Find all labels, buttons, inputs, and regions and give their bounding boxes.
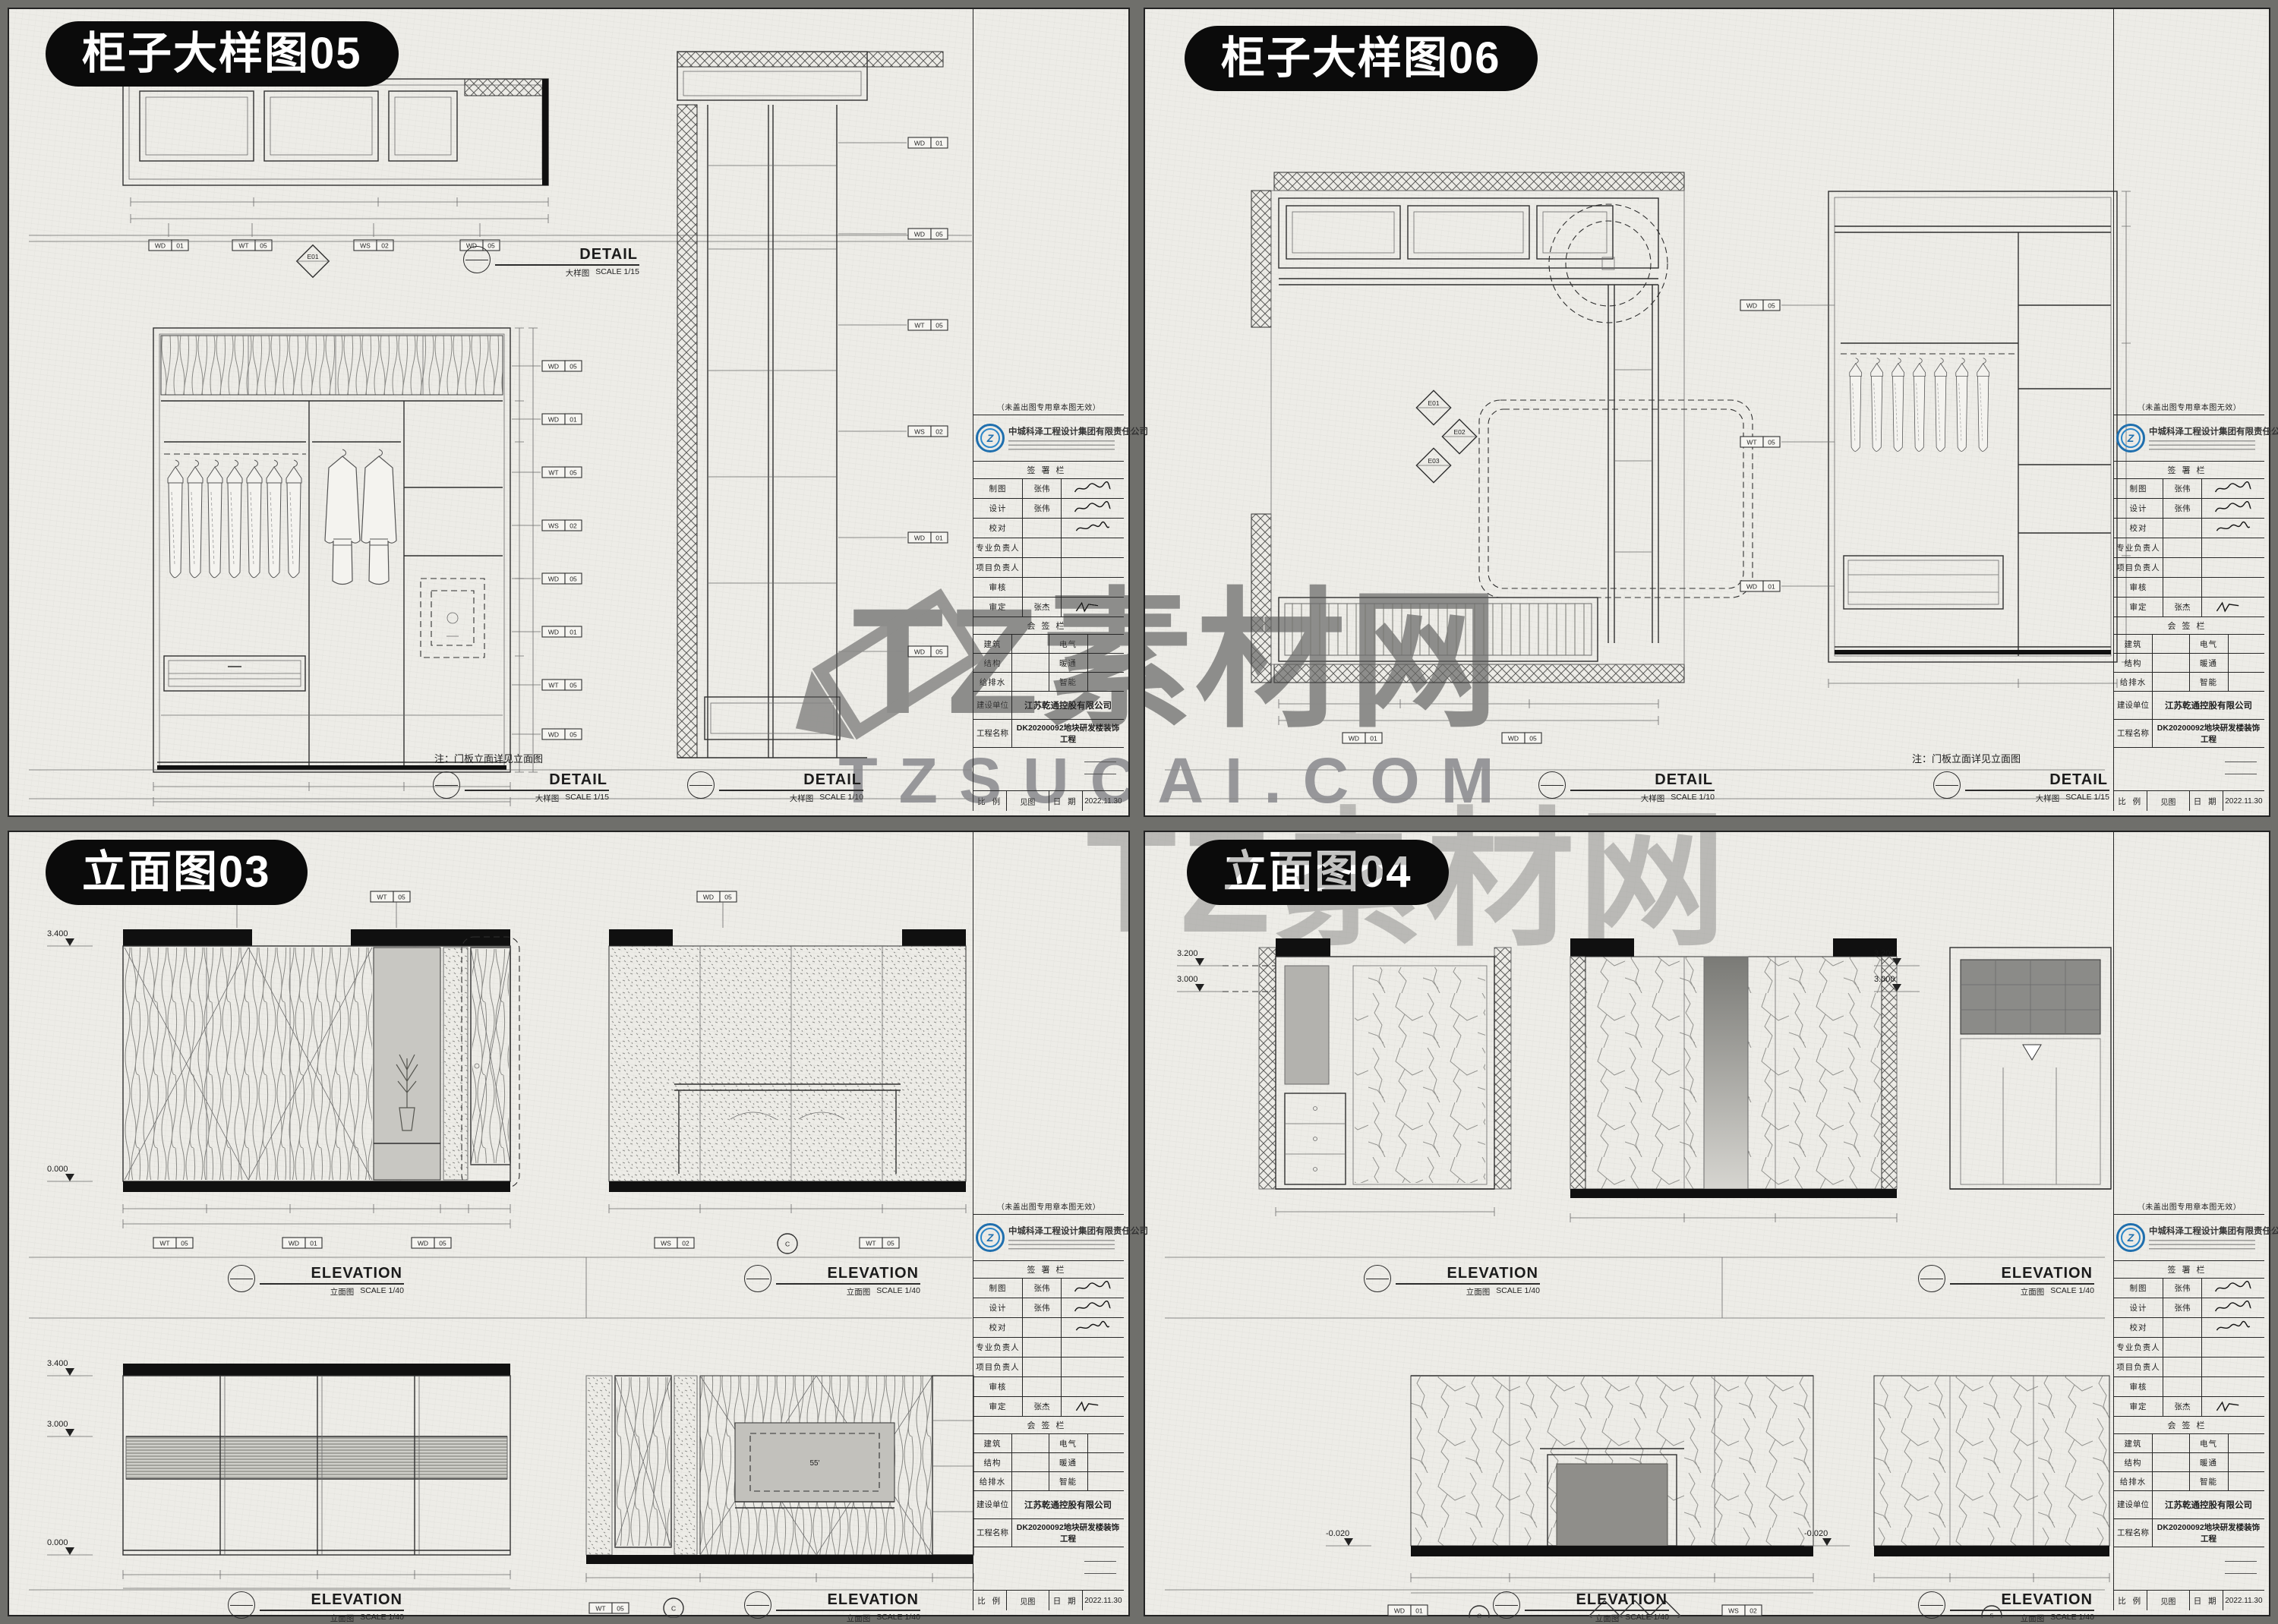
sheet-title-pill: 柜子大样图05 — [46, 21, 399, 87]
svg-text:3.400: 3.400 — [47, 929, 68, 938]
svg-text:WD: WD — [1349, 735, 1359, 743]
titleblock-row: 制图张伟 — [2114, 1279, 2264, 1298]
company-cert-microtext — [2149, 440, 2255, 453]
svg-text:05: 05 — [487, 242, 495, 250]
countersign-row: 结构暖通 — [2114, 1453, 2264, 1472]
cabinet-detail-06-drawing: E01 E02 E03 WD01 WD05 WD05 WT05 WD01 — [1145, 9, 2272, 818]
scale-date-row: 比 例见图 日 期2022.11.30 — [2114, 791, 2264, 811]
countersign-header: 会签栏 — [2114, 617, 2264, 635]
svg-text:WD: WD — [548, 575, 559, 583]
svg-text:01: 01 — [1415, 1607, 1423, 1615]
svg-text:WT: WT — [238, 242, 248, 250]
sheet-number-area — [973, 1547, 1124, 1591]
svg-text:E03: E03 — [1428, 457, 1439, 465]
level-mark: 3.400 — [47, 929, 93, 946]
title-block: （未盖出图专用章本图无效） Z 中城科泽工程设计集团有限责任公司 签署栏 制图张… — [973, 832, 1124, 1610]
titleblock-row: 审定张杰 — [973, 1397, 1124, 1417]
signature-scribble — [2213, 1281, 2254, 1295]
client-row: 建设单位江苏乾通控股有限公司 — [973, 1491, 1124, 1519]
svg-text:05: 05 — [569, 731, 577, 739]
sheet-elevation-03: 立面图03 WT05 WD01 WD05 — [8, 831, 1130, 1616]
cabinet-plan-detail: WD01 WT05 WS02 WD05 E01 — [123, 79, 548, 277]
signature-scribble — [1072, 1399, 1113, 1414]
tv-size-label: 55' — [809, 1459, 819, 1468]
elevation-label: ELEVATION 立面图SCALE 1/40 — [260, 1591, 404, 1624]
detail-label: DETAIL 大样图SCALE 1/10 — [1570, 771, 1715, 804]
svg-text:05: 05 — [1529, 735, 1537, 743]
scale-date-row: 比 例见图 日 期2022.11.30 — [2114, 1591, 2264, 1610]
svg-text:05: 05 — [181, 1240, 188, 1247]
company-row: Z 中城科泽工程设计集团有限责任公司 — [973, 1214, 1124, 1261]
countersign-row: 给排水智能 — [2114, 1472, 2264, 1491]
svg-text:05: 05 — [569, 363, 577, 371]
elevation-wood-wall-plant: WT05 WD01 WD05 3.400 0.000 WD01 WT05 — [47, 891, 519, 1248]
project-row: 工程名称DK20200092地块研发楼装饰工程 — [973, 720, 1124, 748]
elevation-marble-wall-wide — [1570, 938, 1897, 1222]
svg-text:3.200: 3.200 — [1177, 949, 1198, 958]
svg-text:05: 05 — [1768, 439, 1775, 446]
titleblock-row: 审核 — [973, 1377, 1124, 1397]
titleblock-row: 设计张伟 — [973, 499, 1124, 519]
company-logo-icon: Z — [2116, 1223, 2145, 1252]
svg-text:C: C — [785, 1241, 790, 1248]
svg-text:WS: WS — [548, 522, 559, 530]
level-mark: 3.000 — [47, 1420, 93, 1436]
level-mark: 0.000 — [47, 1165, 93, 1181]
svg-text:3.000: 3.000 — [1874, 975, 1895, 984]
sign-section-header: 签署栏 — [973, 462, 1124, 479]
ref-bubble — [433, 771, 460, 799]
svg-text:WT: WT — [548, 469, 558, 477]
grid-bubble: C — [1469, 1606, 1489, 1618]
titleblock-row: 审核 — [973, 578, 1124, 598]
svg-text:C: C — [671, 1605, 676, 1613]
company-cert-microtext — [2149, 1240, 2255, 1252]
svg-text:01: 01 — [569, 416, 577, 424]
titleblock-row: 专业负责人 — [973, 538, 1124, 558]
title-block: （未盖出图专用章本图无效） Z 中城科泽工程设计集团有限责任公司 签署栏 制图张… — [2113, 9, 2264, 811]
titleblock-row: 审定张杰 — [973, 598, 1124, 617]
finish-tags-column: WD05 WD01 WT05 WS02 WD05 WD01 WT05 WD05 — [512, 361, 582, 739]
svg-text:WD: WD — [548, 416, 559, 424]
titleblock-row: 设计张伟 — [2114, 1298, 2264, 1318]
detail-label: DETAIL 大样图SCALE 1/15 — [495, 246, 639, 279]
sign-section-header: 签署栏 — [2114, 462, 2264, 479]
svg-text:WD: WD — [914, 140, 925, 147]
countersign-header: 会签栏 — [973, 617, 1124, 635]
sheet-elevation-04: 立面图04 3.200 3.000 — [1144, 831, 2270, 1616]
svg-text:WD: WD — [548, 629, 559, 636]
titleblock-row: 制图张伟 — [973, 1279, 1124, 1298]
scale-date-row: 比 例见图 日 期2022.11.30 — [973, 791, 1124, 811]
ref-bubble — [744, 1591, 771, 1619]
svg-text:WD: WD — [1394, 1607, 1405, 1615]
svg-text:3.200: 3.200 — [1874, 949, 1895, 958]
svg-text:E01: E01 — [1428, 399, 1439, 407]
titleblock-row: 校对 — [2114, 1318, 2264, 1338]
company-cert-microtext — [1008, 440, 1115, 453]
elevation-label: ELEVATION 立面图SCALE 1/40 — [776, 1265, 920, 1298]
countersign-row: 建筑电气 — [973, 635, 1124, 654]
company-name: 中城科泽工程设计集团有限责任公司 — [1008, 1227, 1148, 1236]
countersign-row: 建筑电气 — [2114, 635, 2264, 654]
elevation-03-drawing: WT05 WD01 WD05 3.400 0.000 WD01 WT05 C W… — [9, 832, 1131, 1618]
svg-text:WD: WD — [703, 894, 714, 901]
svg-text:3.000: 3.000 — [47, 1420, 68, 1429]
svg-text:-0.020: -0.020 — [1326, 1529, 1349, 1538]
svg-text:WT: WT — [914, 322, 924, 330]
detail-label: DETAIL 大样图SCALE 1/15 — [465, 771, 609, 804]
signature-scribble — [2213, 1320, 2254, 1335]
elevation-04-drawing: 3.200 3.000 — [1145, 832, 2272, 1618]
elevation-ref-diamond: E02 — [1442, 419, 1476, 453]
sheet-number-area — [2114, 748, 2264, 791]
svg-text:WD: WD — [1746, 583, 1757, 591]
wardrobe-elevation: WD05 WT05 WD01 — [1740, 191, 2131, 688]
level-mark: -0.020 — [1326, 1529, 1371, 1546]
sheet-number-area — [2114, 1547, 2264, 1591]
titleblock-row: 专业负责人 — [2114, 1338, 2264, 1358]
countersign-row: 给排水智能 — [973, 673, 1124, 692]
svg-text:0.000: 0.000 — [47, 1165, 68, 1174]
titleblock-row: 审定张杰 — [2114, 1397, 2264, 1417]
svg-text:05: 05 — [260, 242, 267, 250]
svg-text:WD: WD — [914, 231, 925, 238]
titleblock-row: 制图张伟 — [973, 479, 1124, 499]
countersign-row: 结构暖通 — [973, 654, 1124, 673]
svg-text:05: 05 — [569, 682, 577, 689]
detail-label: DETAIL 大样图SCALE 1/10 — [719, 771, 863, 804]
titleblock-row: 审定张杰 — [2114, 598, 2264, 617]
grid-bubble: C — [778, 1234, 797, 1253]
svg-text:02: 02 — [569, 522, 577, 530]
titleblock-row: 校对 — [973, 519, 1124, 538]
signature-scribble — [2213, 1301, 2254, 1315]
sheet-cabinet-detail-05: 柜子大样图05 WD01 WT05 WS02 WD05 — [8, 8, 1130, 817]
sign-section-header: 签署栏 — [2114, 1261, 2264, 1279]
vertical-section-detail: WD01 WD05 WT05 WS02 WD01 WD05 — [677, 52, 948, 758]
elevation-marble-small: -0.020 5 — [1804, 1376, 2109, 1618]
titleblock-row: 专业负责人 — [2114, 538, 2264, 558]
level-mark: 3.000 — [1177, 975, 1223, 992]
svg-text:WD: WD — [155, 242, 166, 250]
svg-text:WS: WS — [914, 428, 925, 436]
signature-scribble — [1072, 501, 1113, 516]
ref-bubble — [228, 1591, 255, 1619]
svg-text:02: 02 — [381, 242, 389, 250]
svg-text:3.000: 3.000 — [1177, 975, 1198, 984]
svg-text:01: 01 — [935, 535, 943, 542]
ref-bubble — [463, 246, 491, 273]
client-row: 建设单位江苏乾通控股有限公司 — [2114, 692, 2264, 720]
safe-box — [421, 579, 484, 657]
company-logo-icon: Z — [976, 1223, 1005, 1252]
titleblock-row: 校对 — [973, 1318, 1124, 1338]
drawer-box — [164, 656, 305, 691]
level-mark: 0.000 — [47, 1538, 93, 1555]
titleblock-row: 审核 — [2114, 578, 2264, 598]
svg-text:WD: WD — [289, 1240, 299, 1247]
elevation-label: ELEVATION 立面图SCALE 1/40 — [1525, 1591, 1669, 1624]
titleblock-row: 项目负责人 — [2114, 1358, 2264, 1377]
svg-text:E01: E01 — [307, 253, 318, 260]
elevation-ref-diamond: E01 — [1416, 390, 1450, 424]
svg-text:01: 01 — [1768, 583, 1775, 591]
company-cert-microtext — [1008, 1240, 1115, 1252]
signature-scribble — [1072, 600, 1113, 614]
svg-text:05: 05 — [617, 1605, 624, 1613]
svg-text:02: 02 — [935, 428, 943, 436]
svg-text:05: 05 — [935, 648, 943, 656]
elevation-marble-fireplace: -0.020 C WD01 WS02 — [1326, 1376, 1813, 1618]
elevation-glass-louver-wall: 3.400 3.000 0.000 — [47, 1359, 510, 1588]
elevation-label: ELEVATION 立面图SCALE 1/40 — [776, 1591, 920, 1624]
grid-bubble: C — [664, 1598, 683, 1618]
signature-scribble — [2213, 501, 2254, 516]
sheet-title-pill: 柜子大样图06 — [1185, 26, 1538, 91]
titleblock-row: 设计张伟 — [2114, 499, 2264, 519]
svg-text:01: 01 — [935, 140, 943, 147]
company-row: Z 中城科泽工程设计集团有限责任公司 — [973, 415, 1124, 462]
detail-label: DETAIL 大样图SCALE 1/15 — [1965, 771, 2109, 804]
ref-bubble — [1538, 771, 1566, 799]
ref-bubble — [228, 1265, 255, 1292]
company-name: 中城科泽工程设计集团有限责任公司 — [2149, 1227, 2278, 1236]
elevation-wood-wall-tv: 55' C WT05 — [586, 1376, 973, 1618]
company-logo-icon: Z — [2116, 424, 2145, 453]
svg-text:01: 01 — [176, 242, 184, 250]
signature-scribble — [1072, 1281, 1113, 1295]
signature-scribble — [2213, 481, 2254, 496]
svg-text:WT: WT — [159, 1240, 169, 1247]
titleblock-row: 设计张伟 — [973, 1298, 1124, 1318]
level-mark: 3.400 — [47, 1359, 93, 1376]
titleblock-row: 项目负责人 — [2114, 558, 2264, 578]
stamp-note: （未盖出图专用章本图无效） — [973, 1198, 1124, 1214]
svg-text:WD: WD — [418, 1240, 428, 1247]
drawing-set-canvas: 柜子大样图05 WD01 WT05 WS02 WD05 — [0, 0, 2278, 1624]
countersign-row: 结构暖通 — [973, 1453, 1124, 1472]
titleblock-row: 审核 — [2114, 1377, 2264, 1397]
project-row: 工程名称DK20200092地块研发楼装饰工程 — [973, 1519, 1124, 1547]
project-row: 工程名称DK20200092地块研发楼装饰工程 — [2114, 1519, 2264, 1547]
sign-section-header: 签署栏 — [973, 1261, 1124, 1279]
ref-bubble — [1918, 1265, 1945, 1292]
title-block: （未盖出图专用章本图无效） Z 中城科泽工程设计集团有限责任公司 签署栏 制图张… — [973, 9, 1124, 811]
svg-text:WD: WD — [548, 363, 559, 371]
svg-text:05: 05 — [569, 469, 577, 477]
svg-text:-0.020: -0.020 — [1804, 1529, 1828, 1538]
wardrobe-elevation — [153, 328, 538, 806]
company-name: 中城科泽工程设计集团有限责任公司 — [1008, 427, 1148, 437]
elevation-ref-diamond: E01 — [297, 245, 329, 277]
countersign-row: 建筑电气 — [2114, 1434, 2264, 1453]
company-row: Z 中城科泽工程设计集团有限责任公司 — [2114, 415, 2264, 462]
signature-scribble — [2213, 1399, 2254, 1414]
svg-text:05: 05 — [1768, 302, 1775, 310]
ref-bubble — [687, 771, 715, 799]
signature-scribble — [1072, 1301, 1113, 1315]
sheet-title-pill: 立面图04 — [1187, 840, 1449, 905]
sheet-cabinet-detail-06: 柜子大样图06 E — [1144, 8, 2270, 817]
svg-text:WT: WT — [377, 894, 387, 901]
titleblock-row: 校对 — [2114, 519, 2264, 538]
svg-text:05: 05 — [439, 1240, 446, 1247]
titleblock-row: 项目负责人 — [973, 1358, 1124, 1377]
signature-scribble — [2213, 521, 2254, 535]
svg-text:01: 01 — [1370, 735, 1377, 743]
svg-text:WD: WD — [1746, 302, 1757, 310]
svg-text:WT: WT — [866, 1240, 876, 1247]
elevation-label: ELEVATION 立面图SCALE 1/40 — [1950, 1591, 2094, 1624]
stamp-note: （未盖出图专用章本图无效） — [2114, 1198, 2264, 1214]
elevation-stone-wall-desk: C WS02 WT05 WD05 — [609, 891, 966, 1253]
svg-text:WS: WS — [661, 1240, 671, 1247]
ref-bubble — [744, 1265, 771, 1292]
elevation-label: ELEVATION 立面图SCALE 1/40 — [1396, 1265, 1540, 1298]
svg-text:0.000: 0.000 — [47, 1538, 68, 1547]
svg-text:WS: WS — [360, 242, 371, 250]
svg-text:WD: WD — [914, 648, 925, 656]
titleblock-row: 专业负责人 — [973, 1338, 1124, 1358]
signature-scribble — [2213, 600, 2254, 614]
countersign-header: 会签栏 — [973, 1417, 1124, 1434]
svg-text:02: 02 — [682, 1240, 689, 1247]
door-panel-note: 注：门板立面详见立面图 — [434, 753, 543, 765]
svg-text:E02: E02 — [1453, 428, 1465, 436]
svg-text:01: 01 — [569, 629, 577, 636]
ref-bubble — [1493, 1591, 1520, 1619]
elevation-cabinet-niche: 3.200 3.000 — [1177, 938, 1511, 1216]
svg-text:WT: WT — [1746, 439, 1756, 446]
svg-text:WD: WD — [914, 535, 925, 542]
sheet-title-pill: 立面图03 — [46, 840, 308, 905]
svg-text:05: 05 — [398, 894, 405, 901]
svg-text:05: 05 — [887, 1240, 894, 1247]
elevation-label: ELEVATION 立面图SCALE 1/40 — [260, 1265, 404, 1298]
company-logo-icon: Z — [976, 424, 1005, 453]
svg-text:WT: WT — [595, 1605, 605, 1613]
svg-text:WS: WS — [1728, 1607, 1739, 1615]
cabinet-detail-05-drawing: WD01 WT05 WS02 WD05 E01 — [9, 9, 1131, 818]
svg-text:WD: WD — [548, 731, 559, 739]
signature-scribble — [1072, 481, 1113, 496]
level-mark: 3.200 — [1177, 949, 1223, 966]
elevation-grid-panel: 3.200 3.000 — [1874, 948, 2111, 1189]
signature-scribble — [1072, 521, 1113, 535]
svg-text:3.400: 3.400 — [47, 1359, 68, 1368]
svg-text:05: 05 — [569, 575, 577, 583]
titleblock-row: 制图张伟 — [2114, 479, 2264, 499]
svg-text:WD: WD — [1508, 735, 1519, 743]
countersign-row: 给排水智能 — [973, 1472, 1124, 1491]
stamp-note: （未盖出图专用章本图无效） — [2114, 399, 2264, 415]
title-block: （未盖出图专用章本图无效） Z 中城科泽工程设计集团有限责任公司 签署栏 制图张… — [2113, 832, 2264, 1610]
svg-text:WT: WT — [548, 682, 558, 689]
stamp-note: （未盖出图专用章本图无效） — [973, 399, 1124, 415]
ref-bubble — [1933, 771, 1961, 799]
countersign-header: 会签栏 — [2114, 1417, 2264, 1434]
svg-text:01: 01 — [310, 1240, 317, 1247]
ref-bubble — [1364, 1265, 1391, 1292]
company-name: 中城科泽工程设计集团有限责任公司 — [2149, 427, 2278, 437]
door-panel-note: 注：门板立面详见立面图 — [1912, 753, 2021, 765]
titleblock-row: 项目负责人 — [973, 558, 1124, 578]
svg-text:05: 05 — [935, 231, 943, 238]
sheet-number-area — [973, 748, 1124, 791]
svg-text:05: 05 — [935, 322, 943, 330]
elevation-label: ELEVATION 立面图SCALE 1/40 — [1950, 1265, 2094, 1298]
client-row: 建设单位江苏乾通控股有限公司 — [2114, 1491, 2264, 1519]
countersign-row: 给排水智能 — [2114, 673, 2264, 692]
svg-text:05: 05 — [724, 894, 732, 901]
project-row: 工程名称DK20200092地块研发楼装饰工程 — [2114, 720, 2264, 748]
client-row: 建设单位江苏乾通控股有限公司 — [973, 692, 1124, 720]
elevation-ref-diamond: E03 — [1416, 448, 1450, 482]
countersign-row: 建筑电气 — [973, 1434, 1124, 1453]
company-row: Z 中城科泽工程设计集团有限责任公司 — [2114, 1214, 2264, 1261]
svg-text:02: 02 — [1750, 1607, 1757, 1615]
closet-plan: E01 E02 E03 WD01 WD05 — [1251, 172, 1753, 743]
scale-date-row: 比 例见图 日 期2022.11.30 — [973, 1591, 1124, 1610]
ref-bubble — [1918, 1591, 1945, 1619]
countersign-row: 结构暖通 — [2114, 654, 2264, 673]
signature-scribble — [1072, 1320, 1113, 1335]
